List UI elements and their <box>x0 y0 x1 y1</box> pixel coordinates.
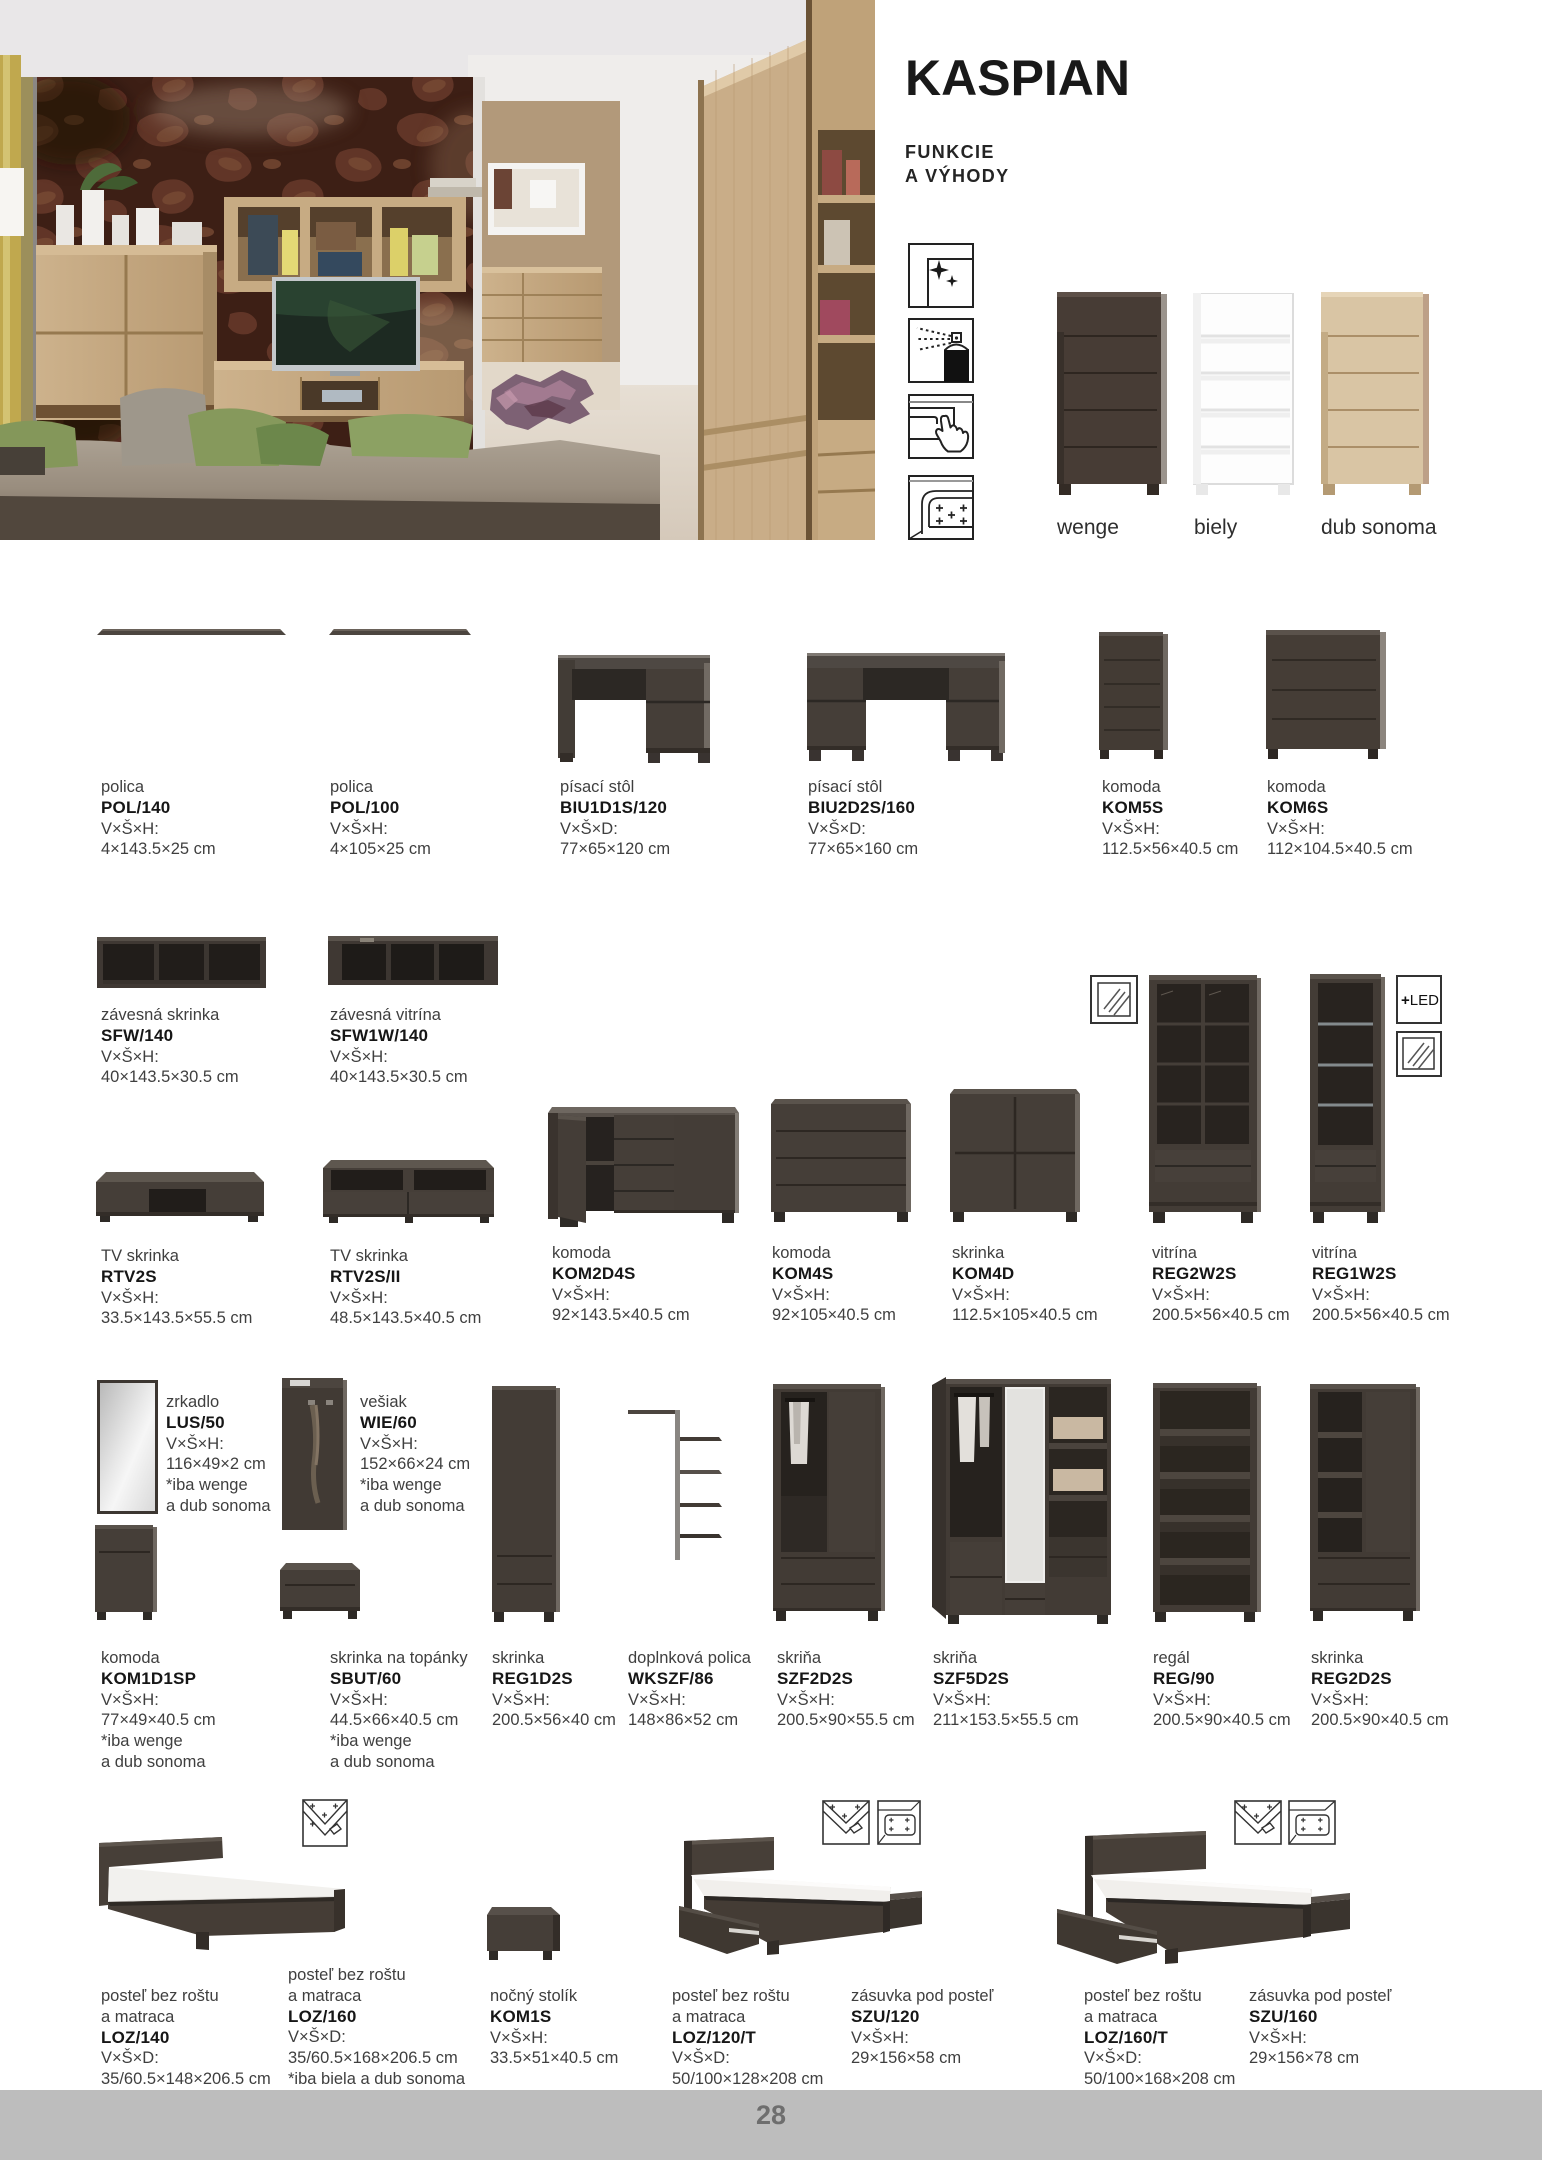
svg-text:+LED: +LED <box>1401 992 1439 1009</box>
